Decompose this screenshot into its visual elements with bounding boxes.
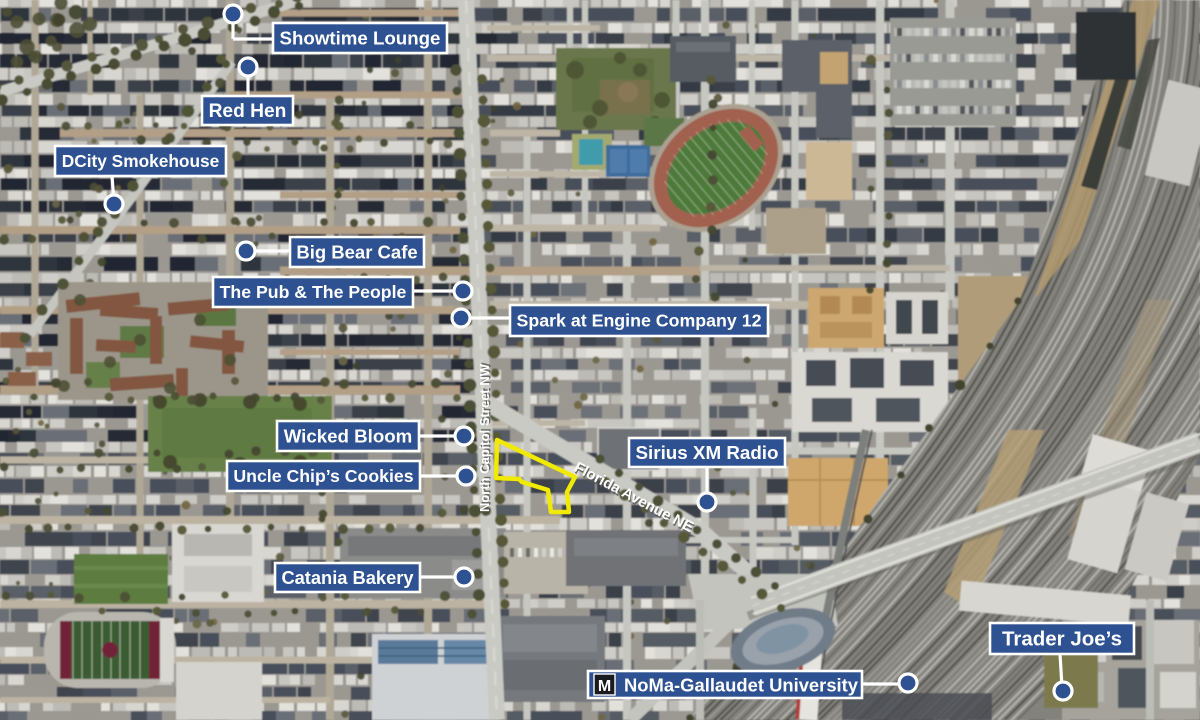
svg-text:Catania Bakery: Catania Bakery: [281, 567, 414, 588]
svg-text:NoMa-Gallaudet University: NoMa-Gallaudet University: [624, 675, 859, 696]
svg-text:DCity Smokehouse: DCity Smokehouse: [62, 151, 220, 171]
svg-text:Wicked Bloom: Wicked Bloom: [284, 426, 413, 447]
svg-text:Red Hen: Red Hen: [209, 101, 287, 122]
svg-text:Big Bear Cafe: Big Bear Cafe: [296, 242, 417, 263]
svg-text:Sirius XM Radio: Sirius XM Radio: [636, 442, 779, 463]
svg-text:North Capitol Street NW: North Capitol Street NW: [477, 363, 492, 512]
svg-text:M: M: [598, 678, 611, 695]
svg-text:Showtime Lounge: Showtime Lounge: [280, 28, 441, 49]
svg-text:Uncle Chip’s Cookies: Uncle Chip’s Cookies: [233, 466, 413, 486]
svg-text:The Pub & The People: The Pub & The People: [220, 282, 407, 302]
svg-text:Spark at Engine Company 12: Spark at Engine Company 12: [516, 311, 761, 331]
svg-text:Trader Joe’s: Trader Joe’s: [1002, 628, 1122, 651]
